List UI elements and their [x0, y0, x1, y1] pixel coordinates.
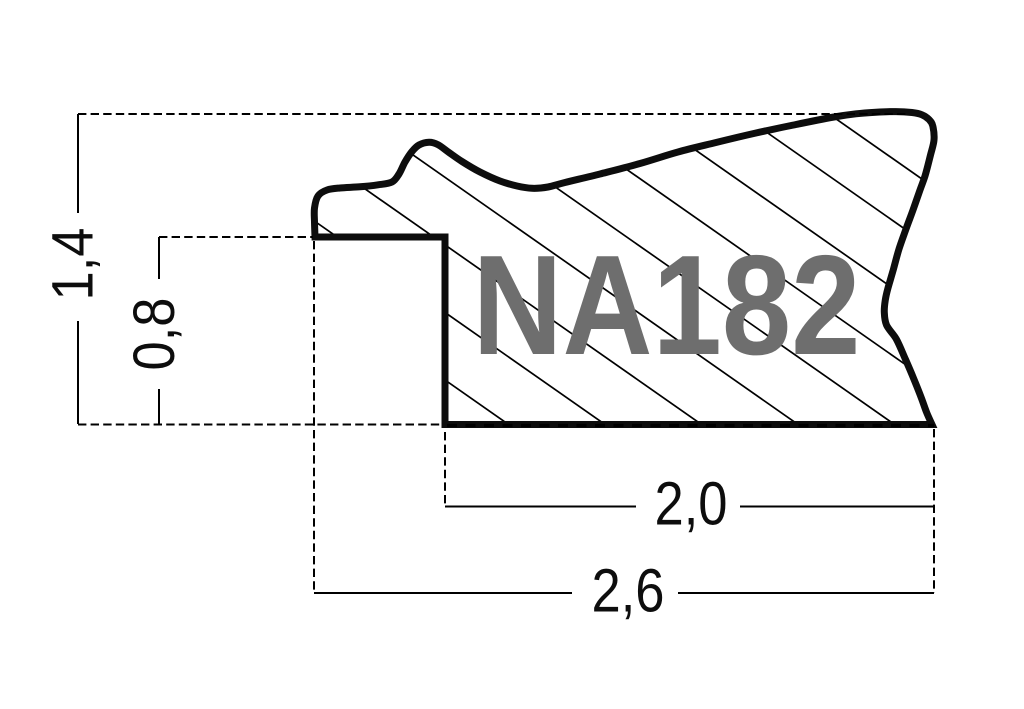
svg-text:2,6: 2,6: [592, 557, 665, 626]
svg-text:2,0: 2,0: [655, 470, 728, 539]
svg-text:1,4: 1,4: [41, 228, 106, 301]
svg-text:NA182: NA182: [473, 226, 861, 385]
svg-text:0,8: 0,8: [122, 298, 187, 371]
